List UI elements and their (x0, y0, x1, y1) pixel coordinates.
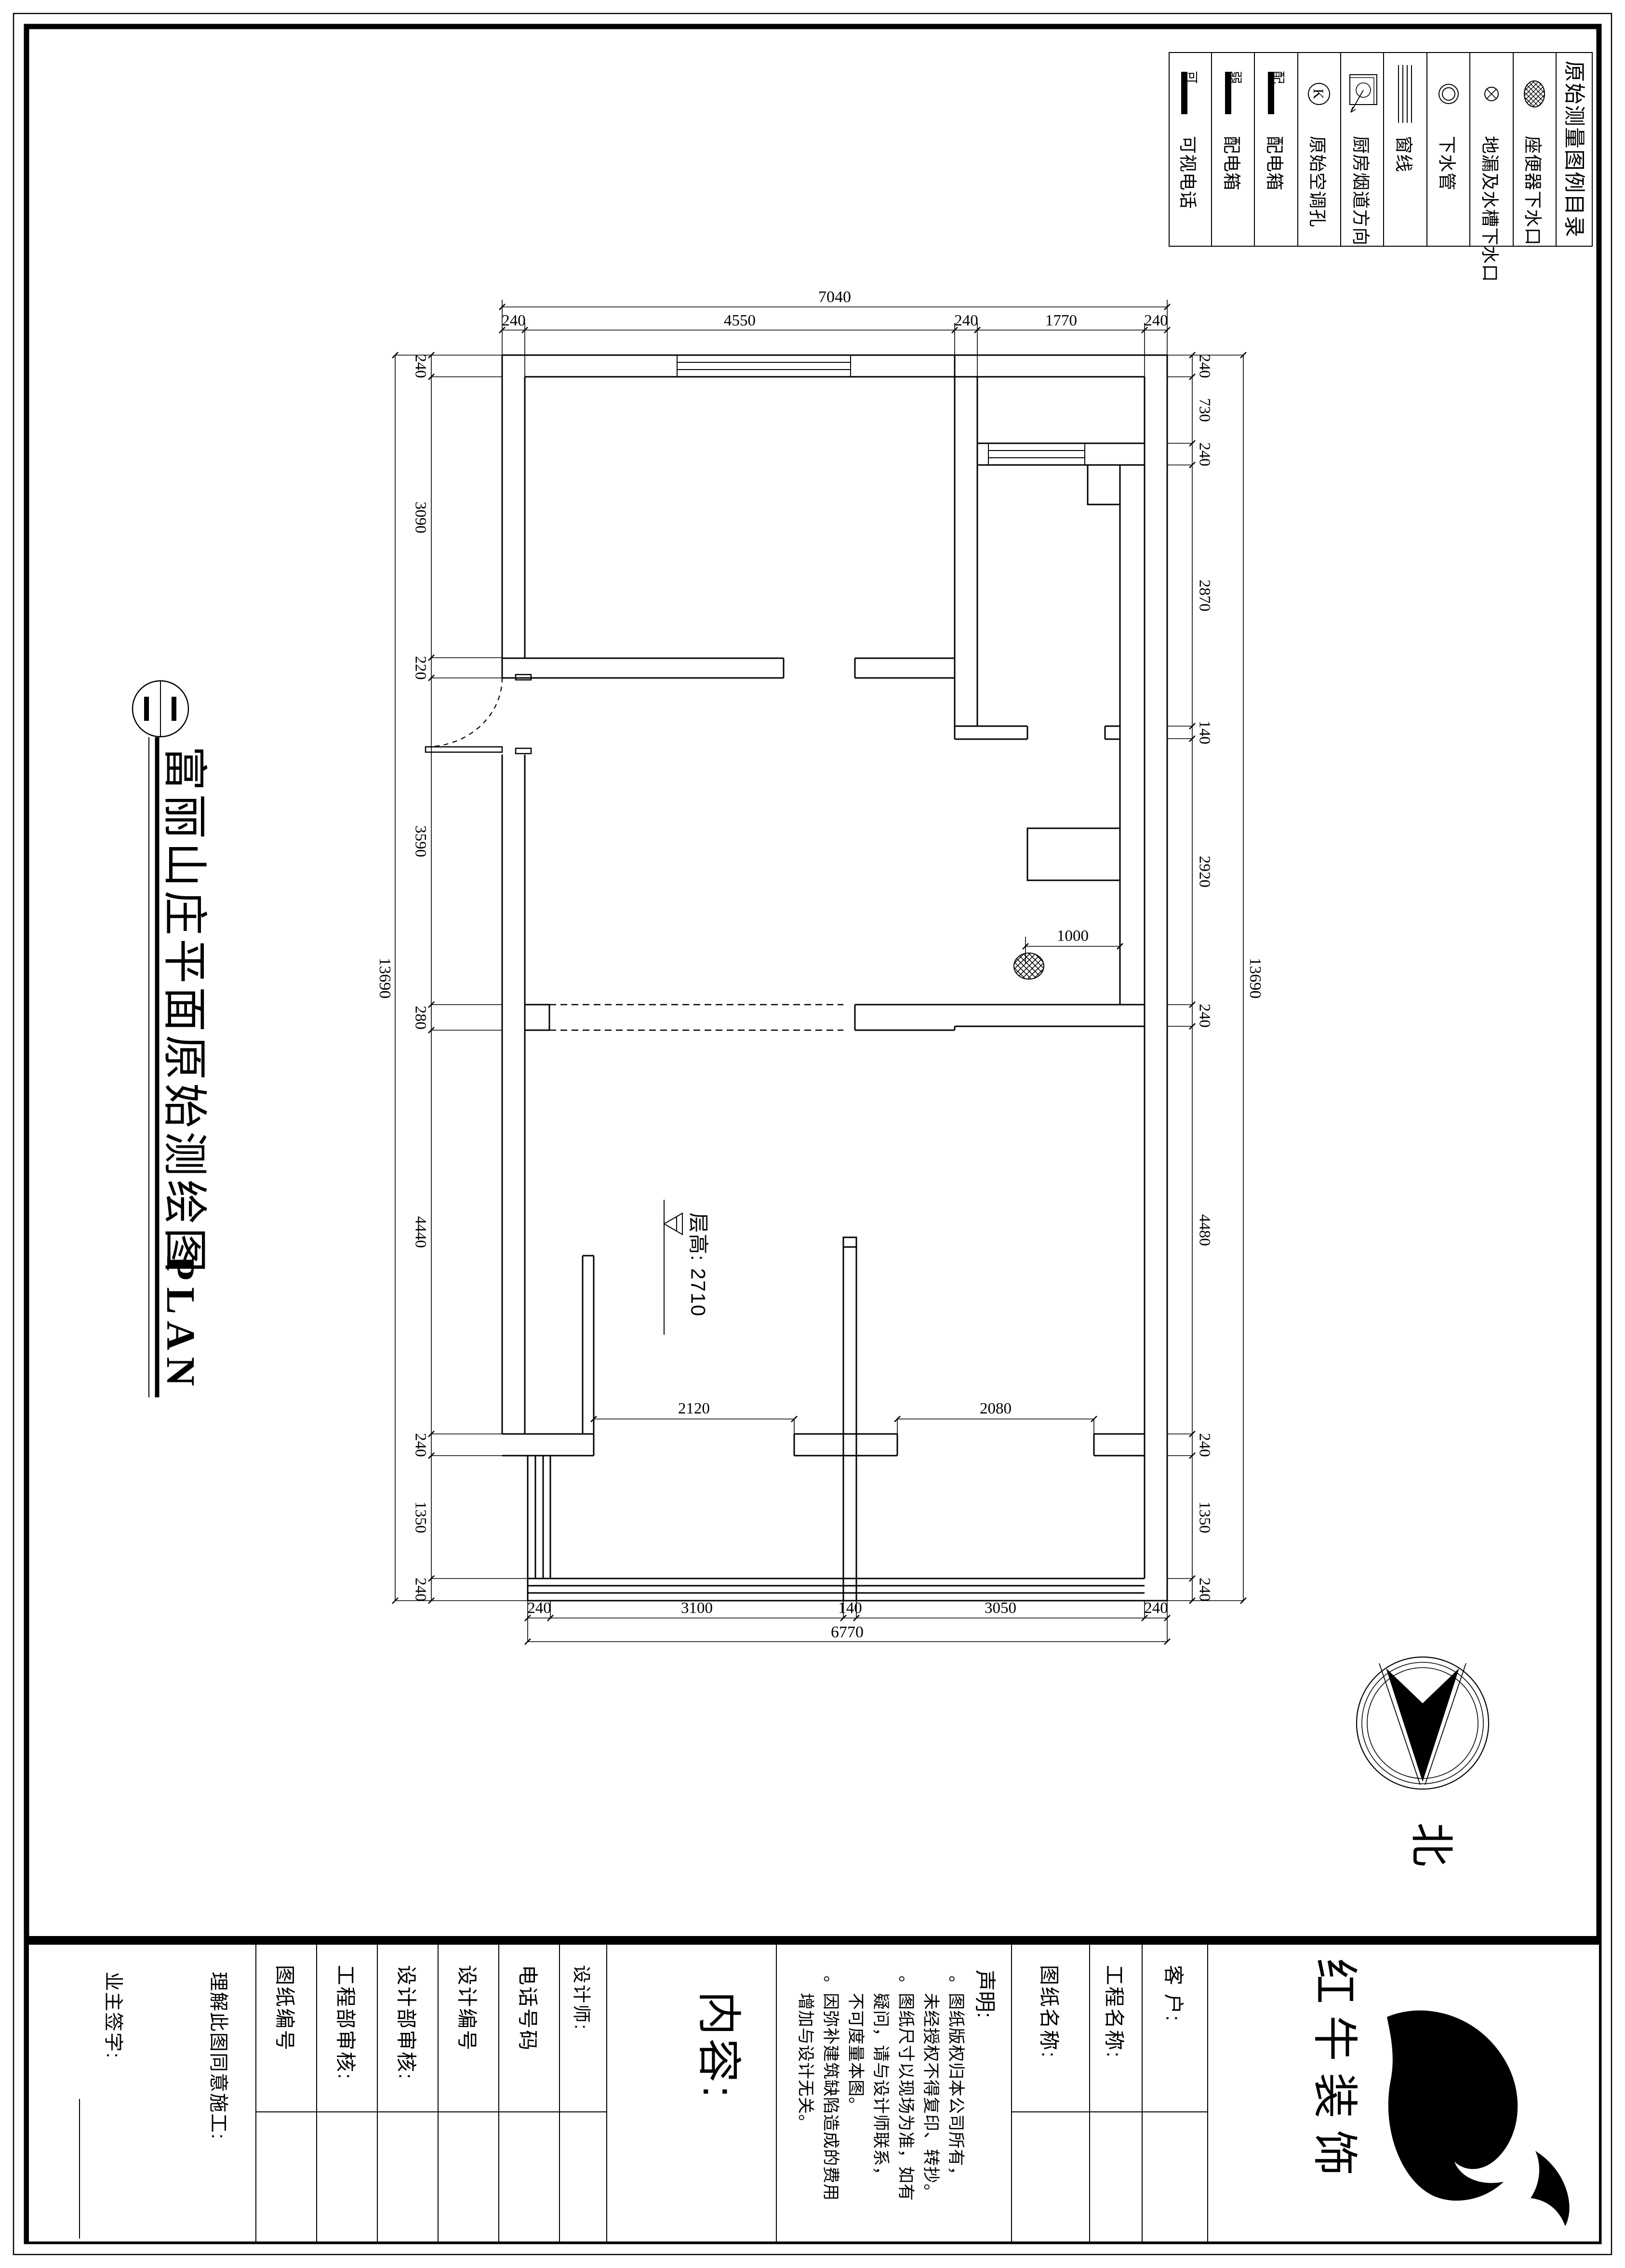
legend-label: 座便器下水口 (1521, 136, 1547, 246)
weak-box-icon: 弱 (1223, 70, 1244, 118)
dim-left: 240 (412, 1433, 429, 1457)
dim-right: 4480 (1196, 1214, 1213, 1246)
declaration-line: 。图纸尺寸以现场为准，如有 (895, 1976, 919, 2201)
legend-label: 原始空调孔 (1306, 136, 1332, 227)
content-label: 内容: (691, 1991, 755, 2101)
legend-label: 地漏及水槽下水口 (1478, 136, 1505, 282)
rednull-bull-logo (1368, 1945, 1594, 2247)
legend-label: 配电箱 (1263, 136, 1289, 191)
window-lines (677, 355, 1085, 465)
floor-height-flag (664, 1200, 682, 1335)
drawing-name-cell: 图纸名称: (1011, 1945, 1089, 2241)
design-no-cell: 设计编号 (438, 1945, 498, 2241)
floor-height-note: 层高: 2710 (685, 1213, 715, 1317)
drawing-subtitle-wrap: PLAN (158, 1256, 202, 1400)
legend-row-weak-box: 弱 配电箱 (1211, 53, 1254, 246)
dim-left: 3590 (412, 825, 429, 857)
ac-hole-icon: K (1298, 53, 1340, 135)
dim-right: 2920 (1196, 856, 1213, 888)
legend-row-video-phone: 可 可视电话 (1168, 53, 1211, 246)
legend-row-floor-drain: 地漏及水槽下水口 (1469, 53, 1512, 246)
north-label: 北 (1403, 1822, 1467, 1867)
legend-label: 配电箱 (1220, 136, 1246, 191)
video-phone-icon: 可 (1179, 70, 1200, 118)
window-line-icon (1384, 53, 1426, 135)
legend-row-power-box: 配 配电箱 (1254, 53, 1297, 246)
design-audit-cell: 设计部审核: (377, 1945, 438, 2241)
declaration-line: 。图纸版权归本公司所有， (945, 1976, 970, 2184)
legend-row-drain-pipe: 下水管 (1426, 53, 1469, 246)
entry-door (426, 675, 531, 754)
designer-label: 设计师: (570, 1965, 597, 2031)
dim-left: 280 (412, 1006, 429, 1030)
dim-top: 1770 (1045, 312, 1077, 330)
declaration-cell: 声明: 。图纸版权归本公司所有， 未经授权不得复印、转抄。 。图纸尺寸以现场为准… (776, 1945, 1011, 2241)
dim-right: 240 (1196, 1578, 1213, 1602)
dim-interior-drain: 1000 (1057, 928, 1089, 945)
legend-label: 可视电话 (1176, 136, 1202, 209)
legend-row-ac-hole: K 原始空调孔 (1297, 53, 1340, 246)
dim-left: 240 (412, 1578, 429, 1602)
power-box-icon: 配 (1265, 70, 1287, 118)
dim-interior-right-room: 2080 (980, 1400, 1012, 1418)
kitchen-flue-icon (1341, 53, 1383, 135)
owner-consent-label: 理解此图同意施工: (206, 1972, 234, 2140)
legend-row-toilet-drain: 座便器下水口 (1513, 53, 1556, 246)
drawing-no-label: 图纸编号 (272, 1965, 301, 2052)
dim-right: 730 (1196, 398, 1213, 422)
content-cell: 内容: (606, 1945, 776, 2241)
declaration-line: 。因弥补建筑缺陷造成的费用 (820, 1976, 844, 2201)
dim-interior-left-room: 2120 (678, 1400, 710, 1418)
dim-right: 240 (1196, 442, 1213, 466)
project-name-label: 工程名称: (1101, 1965, 1131, 2059)
signature-line (79, 2099, 80, 2239)
door-leaf (426, 747, 502, 752)
dim-right: 1350 (1196, 1501, 1213, 1533)
plan-walls (502, 355, 1167, 1601)
owner-signature-cell: 理解此图同意施工: 业主签字: (29, 1945, 255, 2241)
sheet-border (13, 13, 1612, 2255)
kitchen-shaft (1027, 828, 1120, 880)
customer-label: 客 户: (1160, 1965, 1190, 2022)
north-arrow (1357, 1657, 1489, 1789)
figure-number-dash (172, 697, 176, 721)
dim-left: 1350 (412, 1501, 429, 1533)
dim-bottom: 140 (838, 1600, 862, 1618)
figure-number-dash (144, 697, 149, 721)
wall-jamb (843, 1237, 856, 1247)
bath-shaft (1088, 465, 1120, 504)
dimension-lines (395, 300, 1243, 1642)
declaration-line: 不可度量本图。 (845, 1976, 869, 2114)
declaration-line: 疑问，请与设计师联系， (870, 1976, 894, 2184)
legend-wrap: 原始测量图例目录 座便器下水口 地漏及水槽下水口 (1169, 52, 1593, 247)
drawing-name-label: 图纸名称: (1036, 1965, 1066, 2059)
dim-right: 2870 (1196, 580, 1213, 611)
north-arrow-head (1386, 1668, 1459, 1782)
design-audit-label: 设计部审核: (393, 1965, 423, 2081)
toilet-drain-icon (1514, 53, 1556, 135)
dim-right: 240 (1196, 1004, 1213, 1028)
customer-cell: 客 户: (1142, 1945, 1207, 2241)
dim-bottom: 3050 (985, 1600, 1016, 1618)
brand-cell: 红 牛 装 饰 (1207, 1945, 1599, 2241)
designer-cell: 设计师: (559, 1945, 606, 2241)
door-swing-arc (426, 678, 502, 747)
phone-label: 电话号码 (515, 1965, 544, 2052)
legend-label: 下水管 (1436, 136, 1462, 191)
toilet-drain-symbol (1014, 953, 1044, 979)
drawing-subtitle: PLAN (158, 1256, 202, 1400)
dim-top: 240 (502, 312, 526, 330)
dim-top: 4550 (724, 312, 756, 330)
dim-top: 240 (1144, 312, 1168, 330)
dim-bottom: 3100 (681, 1600, 713, 1618)
drain-pipe-icon (1427, 53, 1469, 135)
legend-table: 原始测量图例目录 座便器下水口 地漏及水槽下水口 (1169, 52, 1593, 247)
legend-row-window-line: 窗线 (1383, 53, 1426, 246)
project-name-cell: 工程名称: (1089, 1945, 1142, 2241)
dim-left: 220 (412, 656, 429, 680)
declaration-line: 未经授权不得复印、转抄。 (920, 1976, 945, 2201)
dim-left: 4440 (412, 1216, 429, 1248)
dashed-wall (549, 1005, 843, 1030)
phone-cell: 电话号码 (498, 1945, 559, 2241)
dim-top-total: 7040 (818, 288, 851, 306)
drawing-no-cell: 图纸编号 (255, 1945, 316, 2241)
svg-text:K: K (1310, 89, 1326, 99)
engineering-audit-cell: 工程部审核: (316, 1945, 377, 2241)
title-block: 红 牛 装 饰 客 户: 工程名称: 图纸名称: 声明: 。图纸版权归本公司所有… (29, 1939, 1599, 2241)
legend-row-kitchen-flue: 厨房烟道方向 (1340, 53, 1383, 246)
design-no-label: 设计编号 (454, 1965, 483, 2052)
drawing-title: 富丽山庄平面原始测绘图 (160, 746, 209, 1237)
dim-left: 240 (412, 354, 429, 378)
floor-drain-icon (1470, 53, 1512, 135)
legend-label: 窗线 (1392, 136, 1418, 172)
owner-signature-label: 业主签字: (101, 1972, 129, 2059)
dim-right: 240 (1196, 354, 1213, 378)
engineering-audit-label: 工程部审核: (333, 1965, 362, 2081)
dim-bottom-total: 6770 (831, 1623, 864, 1642)
title-block-wrap: 红 牛 装 饰 客 户: 工程名称: 图纸名称: 声明: 。图纸版权归本公司所有… (29, 1939, 1599, 2241)
dim-right: 240 (1196, 1433, 1213, 1457)
dim-left-total: 13690 (375, 958, 394, 999)
legend-label: 厨房烟道方向 (1349, 136, 1375, 246)
dim-right-total: 13690 (1246, 958, 1264, 999)
brand-name: 红 牛 装 饰 (1305, 1958, 1372, 2175)
floorplan-line-art (0, 0, 1625, 2268)
door-jamb-bottom (516, 748, 531, 754)
dim-top: 240 (954, 312, 978, 330)
declaration-line: 增加与设计无关。 (795, 1976, 819, 2132)
dim-bottom: 240 (1144, 1600, 1168, 1618)
legend-title: 原始测量图例目录 (1556, 53, 1592, 246)
declaration-title: 声明: (972, 1970, 1002, 2018)
drawing-title-wrap: 富丽山庄平面原始测绘图 (160, 746, 209, 1237)
dim-left: 3090 (412, 502, 429, 533)
dim-bottom: 240 (527, 1600, 551, 1618)
dim-right: 140 (1196, 720, 1213, 744)
cad-sheet-page: { "sheet": { "title": "富丽山庄平面原始测绘图", "su… (0, 0, 1625, 2268)
